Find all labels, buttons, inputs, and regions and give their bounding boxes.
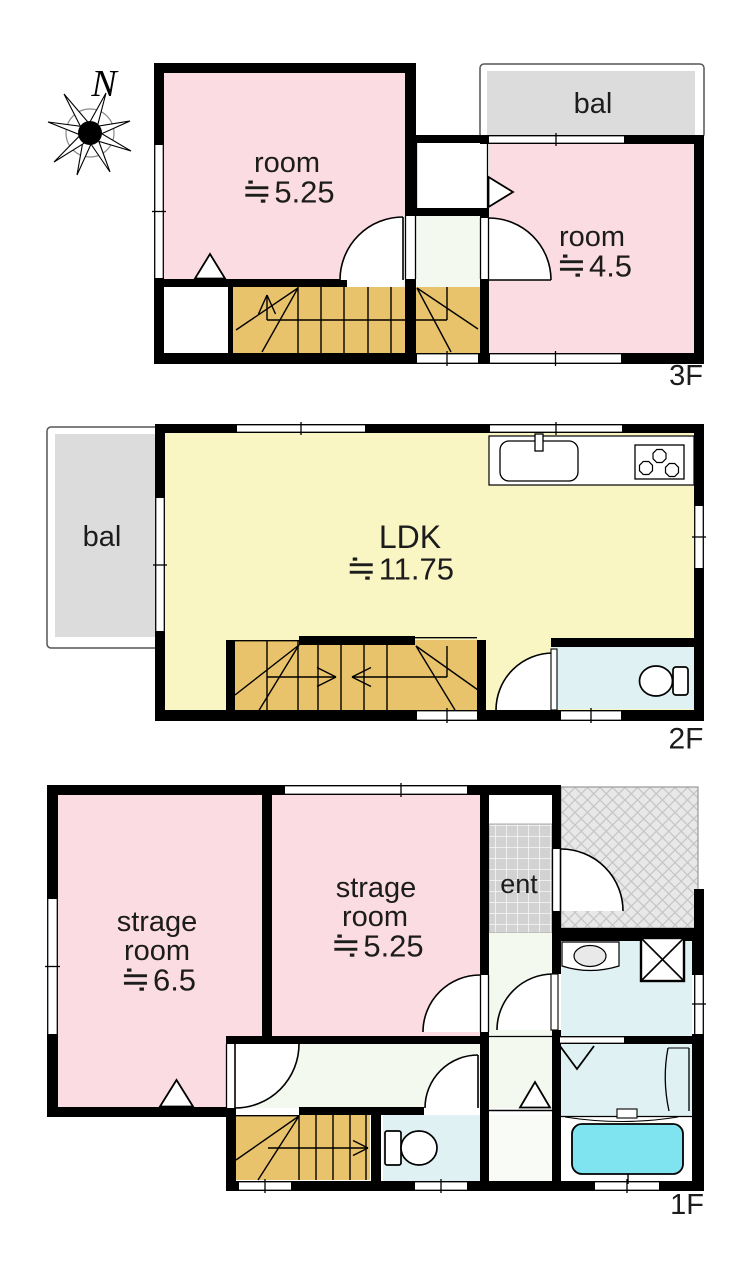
svg-text:6.5: 6.5 xyxy=(153,963,196,998)
svg-text:2F: 2F xyxy=(668,723,703,756)
svg-text:strage: strage xyxy=(117,906,198,938)
svg-text:bal: bal xyxy=(574,88,613,120)
svg-text:1F: 1F xyxy=(670,1189,704,1221)
svg-text:4.5: 4.5 xyxy=(589,249,632,284)
svg-text:LDK: LDK xyxy=(379,519,441,555)
svg-text:bal: bal xyxy=(83,521,122,553)
svg-text:N: N xyxy=(90,63,119,105)
svg-text:5.25: 5.25 xyxy=(274,175,334,210)
svg-text:strage: strage xyxy=(336,872,417,904)
svg-text:ent: ent xyxy=(500,869,538,899)
svg-text:3F: 3F xyxy=(669,360,703,392)
svg-text:11.75: 11.75 xyxy=(379,552,454,587)
svg-text:5.25: 5.25 xyxy=(363,929,423,964)
